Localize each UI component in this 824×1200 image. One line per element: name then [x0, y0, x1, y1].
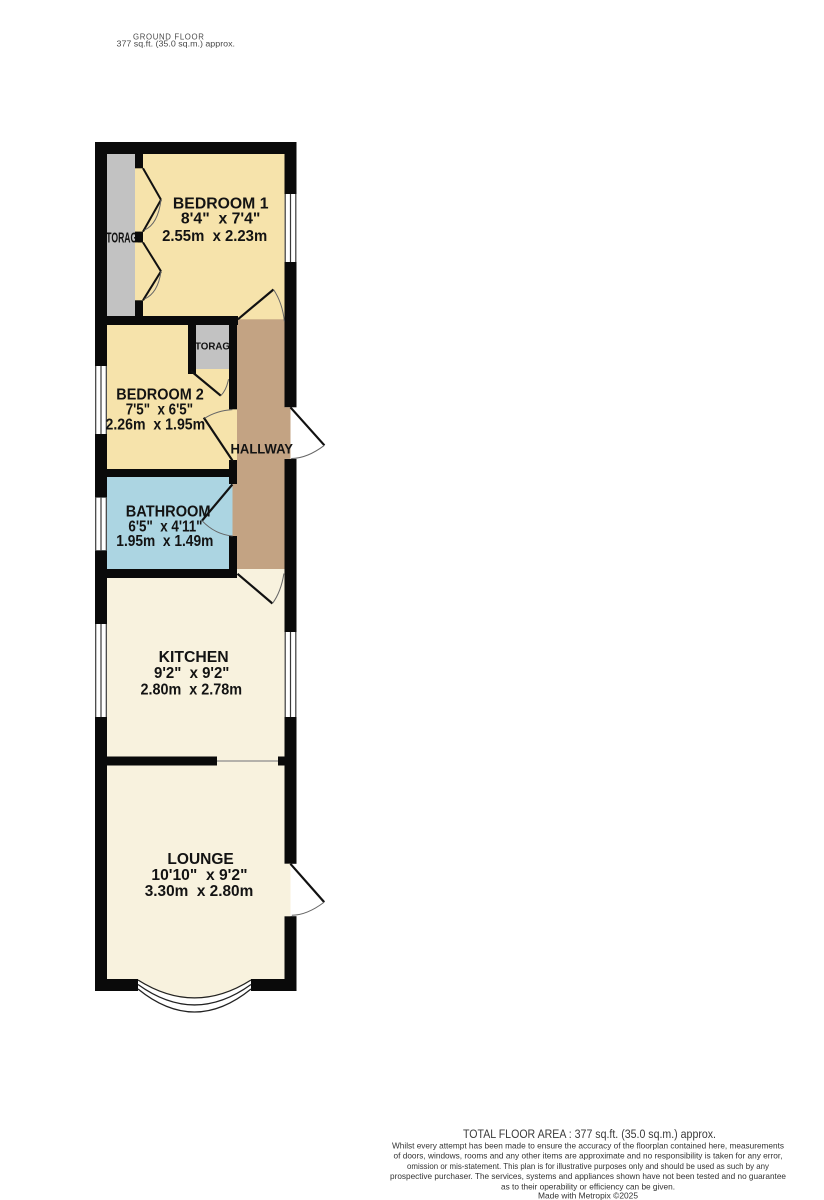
svg-text:1.95m x 1.49m: 1.95m x 1.49m: [116, 533, 213, 550]
svg-text:Whilst every attempt has been: Whilst every attempt has been made to en…: [392, 1140, 784, 1150]
svg-text:8'4" x 7'4": 8'4" x 7'4": [181, 211, 261, 228]
svg-text:377 sq.ft. (35.0 sq.m.) approx: 377 sq.ft. (35.0 sq.m.) approx.: [117, 40, 236, 49]
svg-text:9'2" x 9'2": 9'2" x 9'2": [154, 665, 229, 682]
svg-text:HALLWAY: HALLWAY: [231, 441, 294, 457]
svg-text:2.80m x 2.78m: 2.80m x 2.78m: [141, 681, 243, 698]
svg-text:prospective purchaser. The ser: prospective purchaser. The services, sys…: [390, 1171, 786, 1181]
svg-text:KITCHEN: KITCHEN: [159, 649, 229, 666]
svg-text:TOTAL FLOOR AREA : 377 sq.ft.: TOTAL FLOOR AREA : 377 sq.ft. (35.0 sq.m…: [463, 1127, 716, 1141]
svg-text:omission or mis-statement. Thi: omission or mis-statement. This plan is …: [407, 1161, 770, 1171]
svg-text:3.30m x 2.80m: 3.30m x 2.80m: [145, 883, 254, 900]
svg-text:of doors, windows, rooms and a: of doors, windows, rooms and any other i…: [394, 1151, 783, 1161]
svg-text:10'10" x 9'2": 10'10" x 9'2": [151, 867, 247, 884]
svg-text:LOUNGE: LOUNGE: [167, 851, 234, 868]
svg-text:2.55m x 2.23m: 2.55m x 2.23m: [162, 228, 267, 245]
svg-text:2.26m x 1.95m: 2.26m x 1.95m: [106, 416, 206, 433]
svg-text:Made with Metropix ©2025: Made with Metropix ©2025: [538, 1191, 638, 1200]
